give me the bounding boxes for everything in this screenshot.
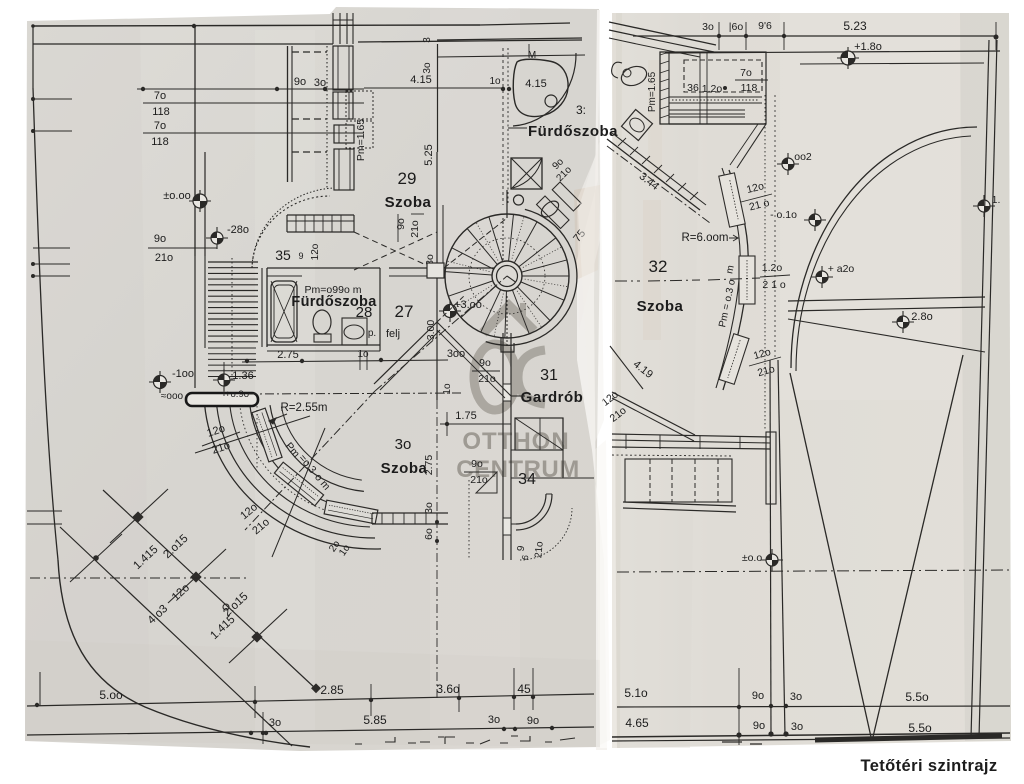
svg-text:3o: 3o	[314, 77, 326, 89]
svg-text:9o: 9o	[527, 715, 539, 727]
svg-text:21o: 21o	[409, 220, 421, 238]
svg-text:9o: 9o	[752, 690, 764, 702]
svg-text:34: 34	[518, 471, 536, 488]
svg-text:2.85: 2.85	[320, 683, 344, 697]
svg-text:29: 29	[398, 169, 417, 188]
svg-text:oo2: oo2	[794, 151, 812, 163]
svg-text:R=2.55m: R=2.55m	[281, 402, 328, 414]
svg-text:9: 9	[298, 251, 303, 261]
svg-text:45: 45	[517, 682, 531, 696]
svg-text:28: 28	[356, 304, 373, 321]
svg-text:5.25: 5.25	[423, 144, 435, 165]
svg-text:118: 118	[151, 136, 169, 148]
svg-text:7o: 7o	[154, 120, 166, 132]
svg-text:felj: felj	[386, 328, 400, 340]
svg-text:6o: 6o	[423, 528, 435, 540]
svg-text:3o: 3o	[790, 691, 802, 703]
svg-text:3o: 3o	[423, 502, 435, 514]
svg-text:- o.1o: - o.1o	[770, 209, 797, 221]
svg-text:1.2o: 1.2o	[702, 83, 723, 95]
svg-text:±o.o: ±o.o	[742, 552, 763, 564]
svg-text:OTTHON: OTTHON	[462, 428, 569, 455]
svg-text:21o: 21o	[155, 252, 173, 264]
svg-text:5.oo: 5.oo	[99, 688, 123, 702]
svg-text:27: 27	[395, 302, 414, 321]
svg-text:Szoba: Szoba	[385, 194, 432, 211]
svg-text:9'6: 9'6	[758, 20, 772, 32]
svg-text:35: 35	[275, 247, 291, 263]
svg-text:9o: 9o	[395, 218, 407, 230]
svg-text:5.23: 5.23	[843, 19, 867, 33]
svg-text:7o: 7o	[740, 67, 752, 79]
svg-text:118: 118	[152, 106, 170, 118]
svg-text:3o: 3o	[791, 721, 803, 733]
svg-text:3o: 3o	[488, 714, 500, 726]
svg-text:5.1o: 5.1o	[624, 686, 648, 700]
svg-text:Pm=1.65: Pm=1.65	[647, 71, 658, 112]
svg-text:3:: 3:	[576, 103, 586, 117]
svg-text:≈ooo: ≈ooo	[161, 391, 184, 402]
svg-text:3o: 3o	[702, 21, 714, 33]
svg-text:2.75: 2.75	[277, 349, 298, 361]
svg-text:3o: 3o	[422, 62, 433, 74]
svg-text:2.8o: 2.8o	[911, 311, 932, 323]
svg-text:31: 31	[540, 367, 558, 384]
svg-text:Pm=1.65: Pm=1.65	[355, 119, 367, 161]
svg-text:2 1 o: 2 1 o	[762, 279, 786, 291]
svg-text:Szoba: Szoba	[381, 460, 428, 477]
svg-text:+1.8o: +1.8o	[854, 41, 882, 53]
svg-text:1.2o: 1.2o	[762, 262, 783, 274]
svg-text:|6o: |6o	[729, 21, 744, 33]
svg-text:36: 36	[687, 82, 699, 94]
svg-text:4.15: 4.15	[525, 78, 546, 90]
svg-text:R=6.oom: R=6.oom	[682, 232, 729, 244]
svg-text:Tetőtéri szintrajz: Tetőtéri szintrajz	[860, 757, 997, 775]
svg-text:-1oo: -1oo	[172, 368, 194, 380]
svg-text:5.5o: 5.5o	[905, 690, 929, 704]
svg-text:9o: 9o	[753, 720, 765, 732]
svg-text:1o: 1o	[489, 76, 501, 87]
svg-text:9o: 9o	[154, 233, 166, 245]
svg-text:Gardrób: Gardrób	[521, 389, 584, 406]
svg-text:3o: 3o	[269, 717, 281, 729]
svg-text:4.15: 4.15	[410, 74, 431, 86]
svg-text:9o: 9o	[294, 76, 306, 88]
svg-text:3.6o: 3.6o	[436, 682, 460, 696]
svg-text:9o: 9o	[471, 458, 483, 470]
svg-text:3o: 3o	[395, 436, 412, 453]
svg-text:12o: 12o	[310, 243, 321, 260]
svg-text:1.75: 1.75	[455, 410, 476, 422]
svg-text:7o: 7o	[154, 90, 166, 102]
svg-text:+ a2o: + a2o	[828, 263, 855, 275]
svg-text:Fürdőszoba: Fürdőszoba	[528, 123, 618, 140]
svg-text:5.5o: 5.5o	[908, 721, 932, 735]
svg-text:3oo: 3oo	[447, 348, 465, 360]
svg-text:21o: 21o	[533, 541, 545, 559]
svg-text:3.00: 3.00	[425, 320, 437, 341]
svg-text:Szoba: Szoba	[637, 298, 684, 315]
svg-text:1.36: 1.36	[232, 370, 253, 382]
svg-text:5.85: 5.85	[363, 713, 387, 727]
svg-text:p.: p.	[368, 328, 376, 339]
svg-text:3: 3	[422, 37, 433, 43]
svg-text:32: 32	[649, 257, 668, 276]
svg-text:-28o: -28o	[227, 224, 249, 236]
svg-text:±o.oo: ±o.oo	[163, 190, 190, 202]
svg-text:+o.9o: +o.9o	[225, 389, 249, 400]
svg-text:4.65: 4.65	[625, 716, 649, 730]
svg-text:118: 118	[741, 82, 758, 94]
svg-text:9o: 9o	[479, 357, 491, 369]
